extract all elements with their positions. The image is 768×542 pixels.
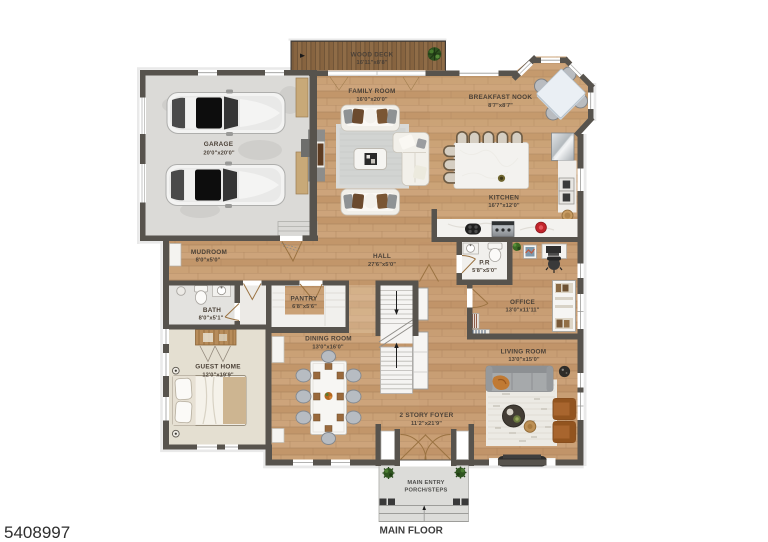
svg-text:PANTRY: PANTRY — [290, 296, 318, 303]
svg-text:13'0"x15'0": 13'0"x15'0" — [508, 357, 540, 363]
svg-text:FAMILY ROOM: FAMILY ROOM — [348, 88, 395, 95]
svg-text:KITCHEN: KITCHEN — [489, 195, 519, 202]
svg-text:LIVING ROOM: LIVING ROOM — [501, 349, 547, 356]
svg-text:GUEST HOME: GUEST HOME — [195, 364, 241, 371]
svg-text:MAIN ENTRY: MAIN ENTRY — [407, 480, 444, 486]
svg-text:16'11"x8'8": 16'11"x8'8" — [356, 60, 387, 66]
svg-text:HALL: HALL — [373, 253, 391, 260]
svg-text:8'7"x8'7": 8'7"x8'7" — [488, 103, 513, 109]
svg-text:DINING ROOM: DINING ROOM — [305, 336, 352, 343]
svg-text:5408997: 5408997 — [4, 523, 70, 542]
svg-text:8'0"x5'1": 8'0"x5'1" — [199, 316, 224, 322]
svg-text:MAIN FLOOR: MAIN FLOOR — [380, 526, 444, 537]
svg-text:16'7"x12'0": 16'7"x12'0" — [488, 203, 520, 209]
svg-text:P.R: P.R — [479, 260, 490, 267]
svg-text:8'0"x5'0": 8'0"x5'0" — [196, 258, 221, 264]
svg-text:2 STORY FOYER: 2 STORY FOYER — [400, 412, 454, 419]
svg-text:13'0"x16'0": 13'0"x16'0" — [312, 345, 344, 351]
svg-text:20'0"x20'0": 20'0"x20'0" — [203, 151, 235, 157]
svg-text:13'0"x11'11": 13'0"x11'11" — [506, 308, 540, 314]
svg-text:12'0"x19'9": 12'0"x19'9" — [202, 373, 234, 379]
svg-text:6'8"x5'6": 6'8"x5'6" — [292, 304, 317, 310]
svg-text:BATH: BATH — [203, 307, 221, 314]
svg-text:16'0"x20'0": 16'0"x20'0" — [356, 97, 388, 103]
svg-text:MUDROOM: MUDROOM — [191, 249, 227, 256]
svg-text:GARAGE: GARAGE — [204, 141, 234, 148]
svg-text:27'6"x5'0": 27'6"x5'0" — [368, 262, 396, 268]
svg-text:PORCH/STEPS: PORCH/STEPS — [405, 488, 448, 494]
svg-text:5'8"x5'0": 5'8"x5'0" — [472, 268, 497, 274]
svg-text:BREAKFAST NOOK: BREAKFAST NOOK — [469, 94, 533, 101]
svg-text:OFFICE: OFFICE — [510, 299, 535, 306]
svg-text:11'2"x21'9": 11'2"x21'9" — [411, 421, 442, 427]
svg-text:WOOD DECK: WOOD DECK — [351, 52, 394, 59]
